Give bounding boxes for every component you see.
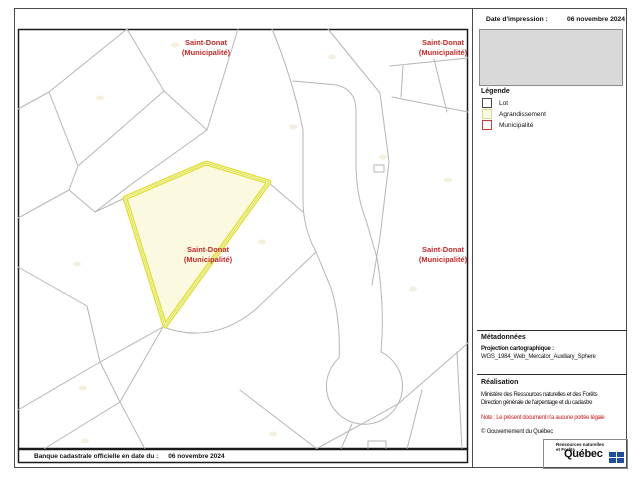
footer-source-bar: Banque cadastrale officielle en date du … [34,450,464,462]
print-date-row: Date d'impression : 06 novembre 2024 [486,16,625,23]
legal-note: Note : Le présent document n'a aucune po… [481,415,604,421]
municipality-label-top-right-line2: (Municipalité) [419,48,468,57]
print-date-label: Date d'impression : [486,16,548,23]
quebec-logo: Ressources naturelles et Forêts Québec [543,439,628,469]
direction-line: Direction générale de l'arpentage et du … [481,400,592,406]
cadastral-map-page: Saint-Donat (Municipalité) Saint-Donat (… [0,0,640,480]
overview-map-placeholder [479,29,623,86]
legend-swatch-agrandissement [482,109,492,119]
legend-label-lot: Lot [499,100,508,107]
copyright-line: © Gouvernement du Québec [481,429,553,435]
legend-swatch-lot [482,98,492,108]
legend-label-agrandissement: Agrandissement [499,111,546,118]
logo-wordmark: Québec [564,448,603,460]
legend-item-agrandissement: Agrandissement [482,109,546,119]
legend-swatch-municipalite [482,120,492,130]
projection-value: WGS_1984_Web_Mercator_Auxiliary_Sphere [481,354,596,360]
municipality-label-top-center-line2: (Municipalité) [182,48,231,57]
print-date-value: 06 novembre 2024 [567,16,625,23]
quebec-flag-icon [609,452,624,463]
map-canvas: Saint-Donat (Municipalité) Saint-Donat (… [0,0,478,480]
municipality-label-mid-right-line2: (Municipalité) [419,255,468,264]
municipality-label-highlight-line2: (Municipalité) [184,255,233,264]
map-frame [19,30,468,449]
section-divider-realisation [477,374,627,375]
legend-title: Légende [481,88,510,95]
municipality-label-top-center-line1: Saint-Donat [185,38,228,47]
footer-source-label: Banque cadastrale officielle en date du … [34,453,158,460]
projection-label: Projection cartographique : [481,346,554,352]
municipality-label-mid-right-line1: Saint-Donat [422,245,465,254]
legend-label-municipalite: Municipalité [499,122,533,129]
municipality-label-top-right-line1: Saint-Donat [422,38,465,47]
legend-item-municipalite: Municipalité [482,120,533,130]
municipality-label-highlight-line1: Saint-Donat [187,245,230,254]
section-divider-metadata [477,330,627,331]
metadata-title: Métadonnées [481,334,526,341]
legend-item-lot: Lot [482,98,508,108]
footer-source-date: 06 novembre 2024 [168,453,224,460]
ministry-line: Ministère des Ressources naturelles et d… [481,392,597,398]
realisation-title: Réalisation [481,379,518,386]
